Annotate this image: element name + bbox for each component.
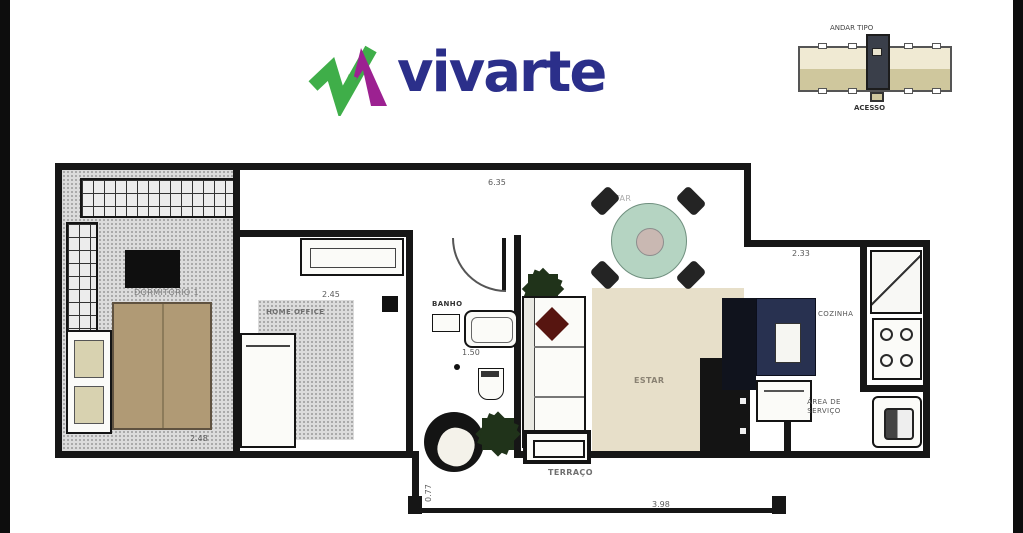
tv-dormitorio: [125, 250, 180, 288]
bedside-shelf: [74, 340, 104, 378]
dining-table: [611, 203, 687, 279]
dim-dormitorio: 2.48: [190, 434, 208, 443]
wall-kitchen-top: [744, 240, 930, 247]
kitchen-counter: [756, 298, 816, 376]
room-label-area-servico: ÁREA DE SERVIÇO: [795, 398, 853, 416]
room-label-terraco: TERRAÇO: [548, 468, 593, 477]
sofa-cushion-line: [534, 396, 584, 398]
dining-chair: [589, 259, 620, 290]
floor-plan: DORMITÓRIO 1 2.48 HOME OFFICE 2.45 BANHO…: [0, 0, 1023, 533]
bathtub-inner: [471, 317, 513, 343]
kitchen-sink: [775, 323, 801, 363]
room-label-home-office: HOME OFFICE: [266, 308, 324, 316]
stove: [872, 318, 922, 380]
wardrobe-top: [80, 178, 235, 218]
wall-home-office-top: [233, 230, 413, 237]
wall-bottom-right: [780, 451, 930, 458]
sofa-backrest: [524, 298, 535, 446]
wall-appliance-column: [860, 247, 867, 387]
fridge: [870, 250, 922, 314]
terrace-rail: [412, 508, 784, 513]
floor-drain: [454, 364, 460, 370]
dim-terraco-depth: 0.77: [424, 484, 433, 502]
entry-door-arc: [452, 238, 506, 292]
room-label-banho: BANHO: [432, 300, 462, 308]
closet-inner: [310, 248, 396, 268]
bed-center-line: [162, 304, 164, 428]
room-label-cozinha: COZINHA: [818, 310, 853, 318]
home-office-daybed: [240, 333, 296, 448]
dining-chair: [675, 185, 706, 216]
terrace-plant-icon: [482, 418, 514, 450]
home-office-closet: [300, 238, 404, 276]
wall-left: [55, 163, 62, 458]
dining-chair: [589, 185, 620, 216]
room-label-estar: ESTAR: [634, 376, 664, 385]
round-armchair: [424, 412, 484, 472]
washing-machine: [872, 396, 922, 448]
bathroom-sink: [432, 314, 460, 332]
toilet-tank: [481, 371, 499, 377]
appliance-line: [764, 390, 804, 392]
floor-plan-page: vivarte ANDAR TIPO ACESSO: [0, 0, 1023, 533]
bedside-shelf: [74, 386, 104, 424]
kitchen-tall-unit: [722, 298, 756, 390]
wall-home-office-right: [406, 230, 413, 458]
dim-home-office: 2.45: [322, 290, 340, 299]
terrace-door: [523, 430, 591, 464]
washer-door: [884, 408, 914, 440]
double-bed: [112, 302, 212, 430]
dim-banho: 1.50: [462, 348, 480, 357]
wall-top: [55, 163, 750, 170]
dim-terraco: 3.98: [652, 500, 670, 509]
toilet: [478, 368, 504, 400]
wall-tv-box: [382, 296, 398, 312]
rack-handle: [740, 398, 746, 404]
dining-centerpiece: [636, 228, 664, 256]
terrace-post: [408, 496, 422, 514]
daybed-pillow-line: [246, 345, 290, 347]
terrace-door-inner: [533, 440, 585, 458]
wall-right: [923, 240, 930, 458]
wall-service-divider: [860, 385, 930, 392]
rack-handle: [740, 428, 746, 434]
armchair-seat: [433, 423, 480, 471]
sofa-cushion-line: [534, 346, 584, 348]
wall-step: [744, 163, 751, 247]
dim-cozinha: 2.33: [792, 249, 810, 258]
dining-chair: [675, 259, 706, 290]
bedside-unit: [66, 330, 112, 434]
dim-overall: 6.35: [488, 178, 506, 187]
bathtub: [464, 310, 518, 348]
entry-door-leaf: [502, 238, 506, 290]
room-label-dormitorio: DORMITÓRIO 1: [104, 288, 229, 297]
terrace-post: [772, 496, 786, 514]
